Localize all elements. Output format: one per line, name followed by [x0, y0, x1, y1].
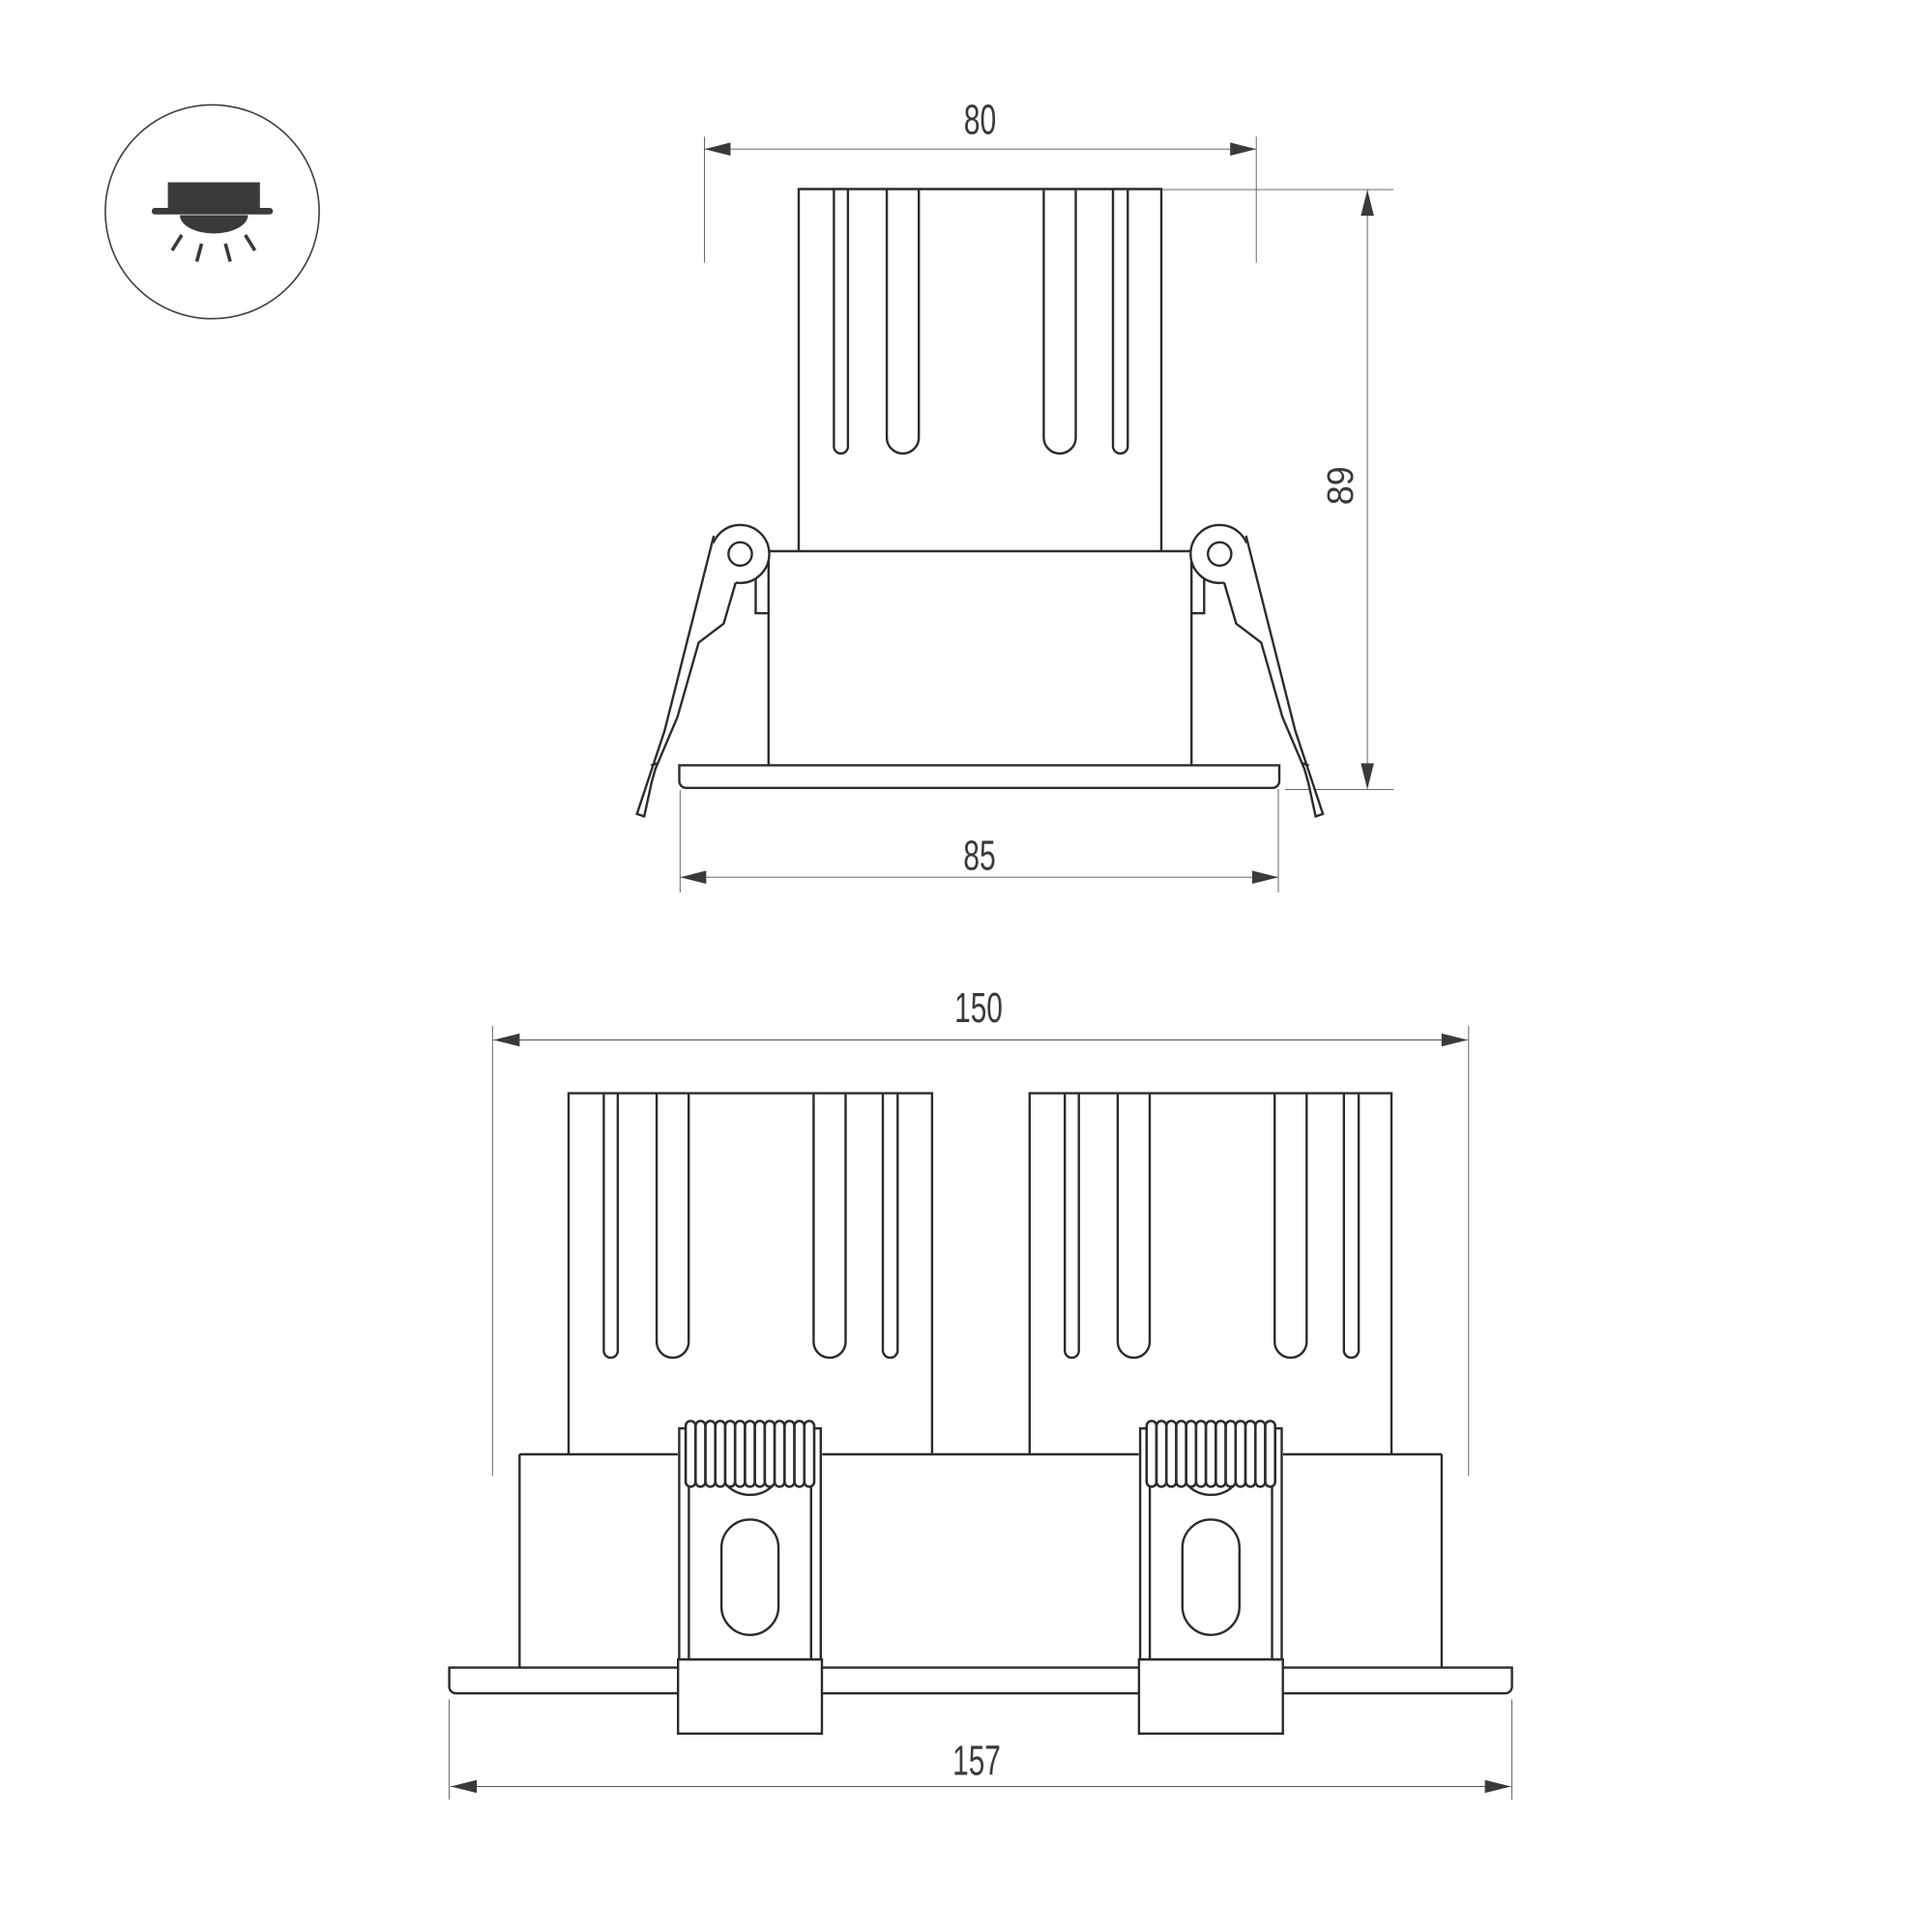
svg-text:85: 85 [963, 832, 996, 879]
svg-text:80: 80 [964, 96, 997, 143]
svg-text:150: 150 [954, 984, 1003, 1032]
svg-text:157: 157 [952, 1737, 1001, 1784]
svg-text:89: 89 [1321, 466, 1361, 505]
